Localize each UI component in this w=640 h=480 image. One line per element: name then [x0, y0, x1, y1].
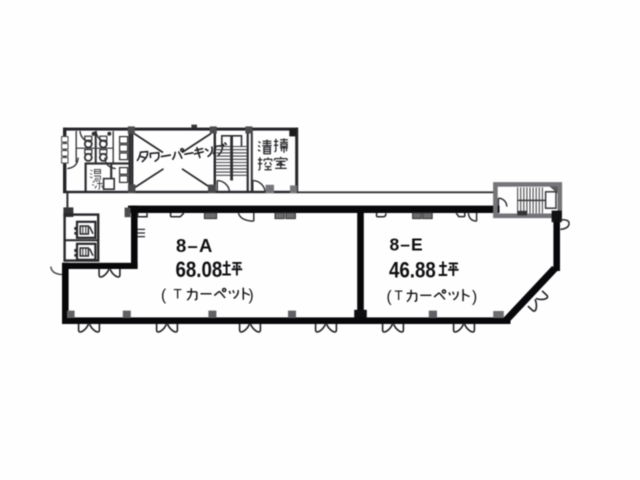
svg-text:8–A: 8–A	[176, 235, 214, 256]
svg-text:): )	[249, 287, 254, 304]
svg-text:): )	[472, 289, 477, 306]
svg-text:68.08: 68.08	[176, 259, 223, 283]
svg-text:8–E: 8–E	[390, 235, 424, 255]
svg-text:(: (	[161, 287, 167, 304]
svg-text:46.88: 46.88	[389, 259, 436, 283]
svg-text:T: T	[174, 287, 182, 302]
svg-text:(: (	[387, 289, 393, 306]
svg-text:T: T	[395, 288, 403, 303]
